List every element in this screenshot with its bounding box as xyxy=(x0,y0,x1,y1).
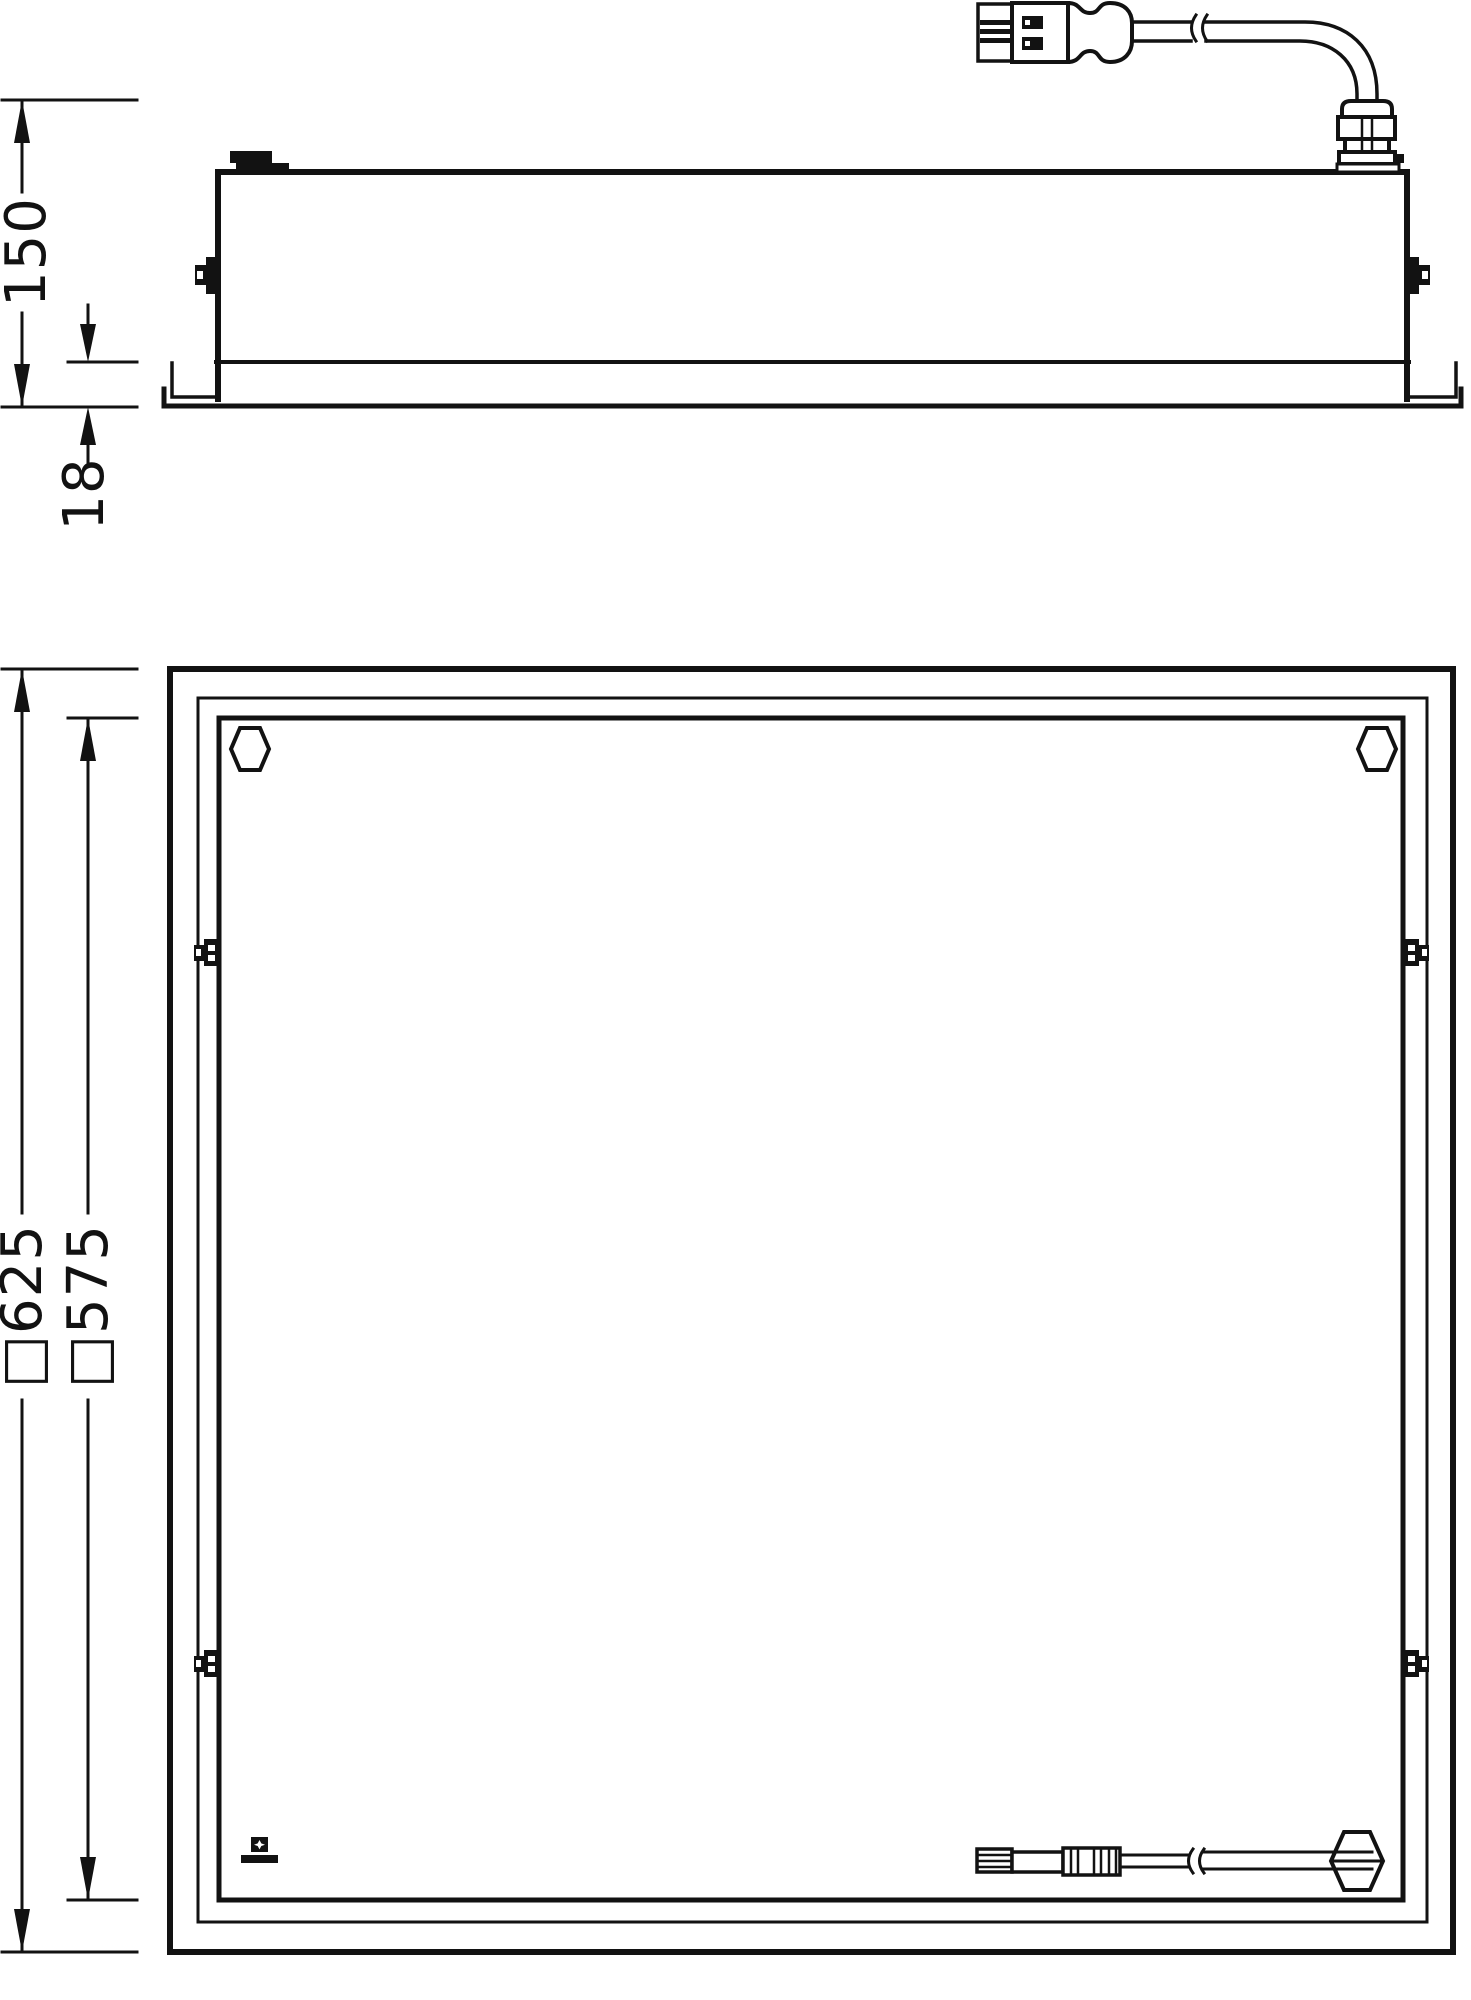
cable-break-symbol xyxy=(1192,15,1208,41)
plan-view xyxy=(170,669,1453,1952)
plan-outer-frame xyxy=(170,669,1453,1952)
trim-face-plate xyxy=(164,389,1461,406)
mains-plug-connector xyxy=(978,3,1132,62)
through-wiring-connector xyxy=(977,1848,1120,1875)
dim-label-575: □575 xyxy=(62,1191,114,1421)
earth-point-symbol xyxy=(241,1837,278,1863)
hex-screw-top-left xyxy=(231,728,269,770)
top-terminal-block xyxy=(230,151,289,172)
technical-drawing-canvas: 150 18 □625 □575 xyxy=(0,0,1471,2000)
cable-gland xyxy=(1337,101,1404,172)
dim-label-18: 18 xyxy=(58,439,110,549)
dimension-linework xyxy=(2,100,137,1952)
dimension-drawing xyxy=(0,0,1471,2000)
plug-strain-relief xyxy=(1068,3,1132,62)
side-view xyxy=(164,3,1461,406)
plan-rear-panel xyxy=(219,718,1403,1900)
trim-profile-left xyxy=(172,363,218,397)
dim-label-150: 150 xyxy=(0,172,52,332)
trim-profile-right xyxy=(1407,363,1456,397)
housing-outline xyxy=(218,172,1407,399)
hex-screw-top-right xyxy=(1358,728,1396,770)
retaining-clip-right-lower xyxy=(1403,1650,1429,1677)
through-wiring-cable xyxy=(1120,1849,1383,1873)
spring-latch-right xyxy=(1406,257,1430,294)
supply-cable xyxy=(1132,15,1377,100)
plug-terminal-stripes xyxy=(980,20,1010,43)
dim-label-625: □625 xyxy=(0,1191,48,1421)
plan-middle-frame xyxy=(198,698,1427,1922)
spring-latch-left xyxy=(195,257,219,294)
retaining-clip-right-upper xyxy=(1403,939,1429,966)
